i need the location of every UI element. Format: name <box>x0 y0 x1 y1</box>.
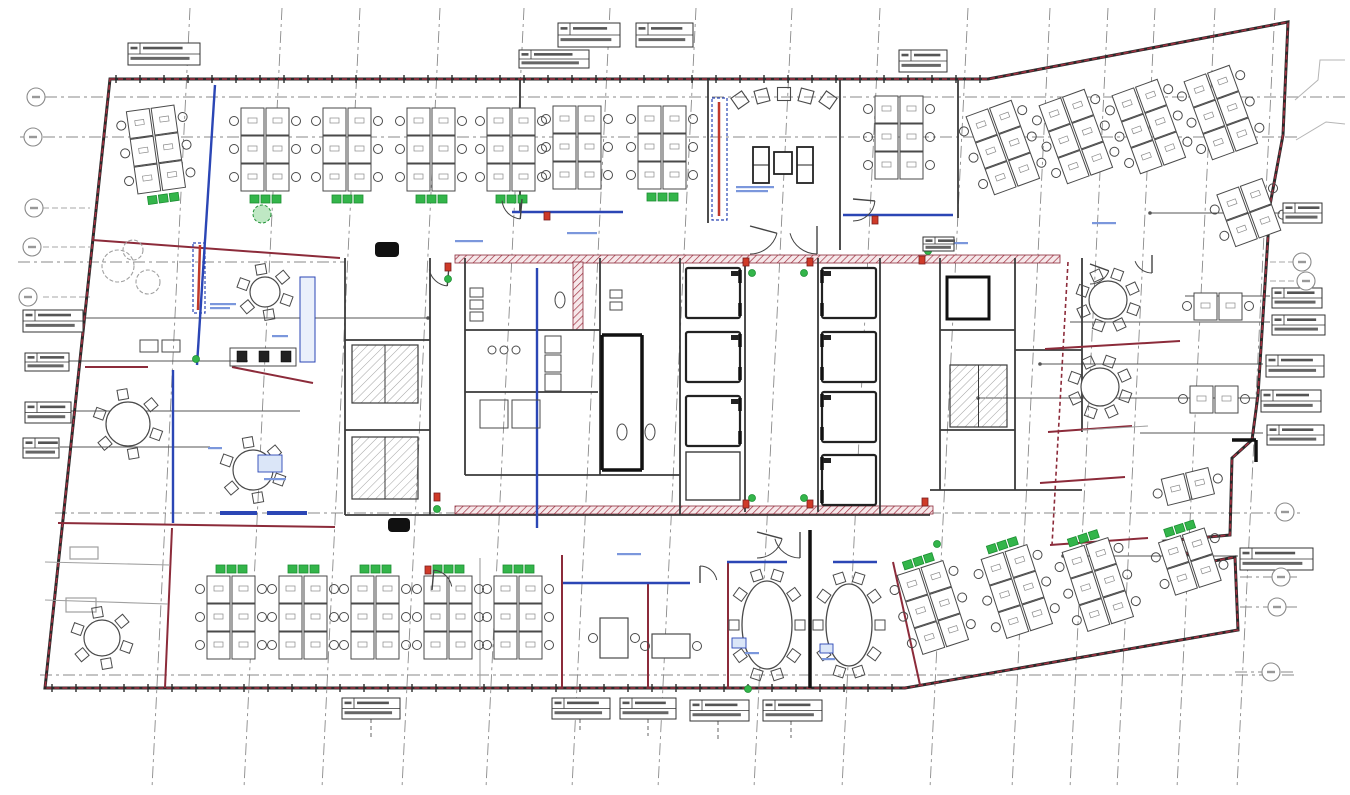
room-tag-name-text <box>573 27 607 30</box>
room-tag-area-text <box>1275 328 1318 331</box>
chair <box>926 105 935 114</box>
desk <box>155 133 182 163</box>
chair <box>864 161 873 170</box>
note-text-blue <box>1092 222 1116 224</box>
room-tag-area-text <box>693 713 741 716</box>
room-tag <box>763 700 822 721</box>
door-swing-arc <box>790 233 817 254</box>
exit-marker-green <box>445 276 452 283</box>
room-tag <box>128 43 200 65</box>
chair <box>990 622 1001 633</box>
door-swing-arc <box>700 566 717 580</box>
desk <box>126 109 153 139</box>
chair <box>458 117 467 126</box>
conference-table-oval <box>826 584 872 666</box>
storage-cabinet-green <box>923 553 934 563</box>
note-text-blue <box>272 335 288 337</box>
chair <box>220 454 233 467</box>
note-text-blue <box>210 303 236 305</box>
desk <box>638 162 661 189</box>
storage-cabinet-green <box>525 565 534 573</box>
desk <box>266 164 289 191</box>
partition-wall <box>1040 477 1125 483</box>
round-table <box>106 402 150 446</box>
room-tag-name-text <box>38 441 58 444</box>
chair <box>833 572 846 585</box>
room-tag-name-text <box>1281 359 1313 362</box>
chair <box>817 589 831 603</box>
chair <box>1016 104 1028 116</box>
chair <box>787 587 801 601</box>
room-tag <box>558 23 620 47</box>
storage-cabinet-green <box>238 565 247 573</box>
desk <box>424 632 447 659</box>
wc-fixture <box>470 300 483 309</box>
desk <box>232 604 255 631</box>
storage-cabinet-green <box>169 192 179 201</box>
chair <box>733 587 747 601</box>
chair <box>977 178 989 190</box>
storage-cabinet-green <box>288 565 297 573</box>
wc-fixture <box>545 374 561 391</box>
room-tag <box>1240 548 1313 570</box>
meeting-table-rect <box>652 634 690 658</box>
grid-bubble <box>1272 568 1290 586</box>
desk <box>279 604 302 631</box>
desk <box>512 136 535 163</box>
chair <box>604 115 613 124</box>
elevator-car <box>686 396 740 446</box>
desk <box>512 164 535 191</box>
wall-recess <box>70 547 98 559</box>
room-tag-area-text <box>1286 216 1318 219</box>
room-tag-number-text <box>902 54 909 57</box>
room-tag-number-text <box>1264 394 1271 397</box>
storage-cabinet-green <box>343 195 352 203</box>
desk <box>900 152 923 179</box>
wc-fixture <box>470 312 483 321</box>
chair <box>476 145 485 154</box>
chair <box>116 121 126 131</box>
storage-cabinet-green <box>986 543 997 553</box>
chair <box>1212 473 1223 484</box>
grid-bubble-label <box>1298 261 1306 263</box>
room-tag <box>620 698 676 719</box>
grid-bubble-label <box>28 246 36 248</box>
room-tag-name-text <box>1276 394 1309 397</box>
chair <box>689 143 698 152</box>
round-table <box>1089 281 1127 319</box>
storage-cabinet-green <box>514 565 523 573</box>
room-tag-area-text <box>522 61 579 64</box>
chair <box>292 117 301 126</box>
room-tag-area-text <box>131 57 190 60</box>
storage-cabinet-green <box>1007 537 1018 547</box>
wc-pan <box>645 424 655 440</box>
light-wall <box>45 600 168 604</box>
desk <box>553 134 576 161</box>
room-tag-area-text <box>623 711 669 714</box>
room-tag-number-text <box>561 27 568 30</box>
desk <box>494 604 517 631</box>
conference-table-group <box>813 572 885 678</box>
desk <box>663 106 686 133</box>
chair <box>458 173 467 182</box>
chair <box>98 436 112 450</box>
partition-wall <box>58 523 335 527</box>
chair <box>101 658 113 670</box>
chair <box>1041 141 1053 153</box>
chair <box>1195 143 1207 155</box>
grid-bubble <box>24 128 42 146</box>
chair <box>75 648 89 662</box>
chair <box>258 613 267 622</box>
room-tag-name-text <box>938 239 955 242</box>
round-table <box>84 620 120 656</box>
chair <box>1105 405 1118 418</box>
note-text-blue <box>736 190 768 192</box>
room-tag <box>899 50 947 72</box>
storage-cabinet-green <box>250 195 259 203</box>
servery-counter <box>300 277 315 362</box>
chair <box>1050 167 1062 179</box>
desk <box>519 604 542 631</box>
chair <box>292 145 301 154</box>
wc-fixture <box>470 288 483 297</box>
chair <box>268 641 277 650</box>
storage-cabinet-green <box>1185 520 1196 530</box>
room-tag-name-text <box>1282 428 1313 431</box>
light-wall <box>45 562 170 565</box>
desk <box>432 164 455 191</box>
chair <box>120 640 133 653</box>
chair <box>230 145 239 154</box>
chair <box>604 143 613 152</box>
door-leaf <box>750 226 777 233</box>
elevator-car <box>822 455 876 505</box>
storage-cabinet-green <box>427 195 436 203</box>
desk <box>151 105 178 135</box>
chair <box>1245 302 1254 311</box>
chair <box>957 592 968 603</box>
chair <box>867 589 881 603</box>
wc-fixtures <box>470 288 655 440</box>
desk <box>1219 293 1242 320</box>
plant-cloud <box>136 270 160 294</box>
lift-pit-room <box>686 452 740 500</box>
exit-marker-green <box>745 686 752 693</box>
chair <box>926 161 935 170</box>
service-elevator <box>947 277 989 319</box>
grid-bubble-label <box>1281 511 1289 513</box>
partition-wall-dashed <box>1052 262 1068 545</box>
chair <box>689 171 698 180</box>
elevator-counterweight <box>731 271 739 276</box>
storage-cabinet-green <box>1174 523 1185 533</box>
desk-cluster <box>1173 61 1268 163</box>
fire-rated-wall-band <box>573 262 583 330</box>
room-tag-number-text <box>1275 318 1282 321</box>
room-tag-area-text <box>1243 562 1303 565</box>
desk <box>266 136 289 163</box>
chair <box>476 117 485 126</box>
chair <box>875 620 885 630</box>
lounge-chair <box>798 88 814 104</box>
room-tag <box>1283 203 1322 223</box>
chair <box>396 173 405 182</box>
chair <box>973 568 984 579</box>
chair <box>268 585 277 594</box>
storage-cabinet-green <box>1088 530 1099 540</box>
desk <box>407 136 430 163</box>
desk <box>638 134 661 161</box>
chair <box>120 148 130 158</box>
desk <box>351 632 374 659</box>
chair <box>458 145 467 154</box>
room-tag <box>25 402 71 423</box>
elevator-counterweight <box>823 395 831 400</box>
chair <box>1113 318 1126 331</box>
storage-cabinet-green <box>310 565 319 573</box>
storage-cabinet-green <box>371 565 380 573</box>
desk <box>207 632 230 659</box>
chair <box>144 398 158 412</box>
storage-cabinet-green <box>1164 527 1175 537</box>
chair <box>1071 615 1082 626</box>
desk <box>1190 386 1213 413</box>
glazed-partition <box>197 85 215 365</box>
chair <box>1082 356 1095 369</box>
chair <box>413 585 422 594</box>
chair <box>751 569 764 582</box>
chair <box>852 665 865 678</box>
desk <box>323 164 346 191</box>
desk-cluster <box>1150 465 1225 508</box>
chair <box>545 613 554 622</box>
chair <box>958 126 970 138</box>
chair <box>242 437 254 449</box>
chair <box>374 117 383 126</box>
desk <box>512 108 535 135</box>
lounge-chair <box>778 88 791 101</box>
exit-marker-green <box>434 506 441 513</box>
desk <box>266 108 289 135</box>
desk-cluster <box>1179 386 1250 413</box>
storage-cabinet-green <box>261 195 270 203</box>
chair <box>1152 488 1163 499</box>
chair <box>276 270 290 284</box>
desk <box>519 632 542 659</box>
room-tag-name-text <box>567 702 599 705</box>
chair <box>127 448 139 460</box>
desk <box>279 576 302 603</box>
round-table <box>250 277 280 307</box>
desk <box>207 576 230 603</box>
chair <box>813 620 823 630</box>
chair <box>312 145 321 154</box>
chair <box>196 613 205 622</box>
desk-cluster <box>1028 85 1123 187</box>
desk <box>376 604 399 631</box>
partition-wall <box>1045 341 1180 349</box>
room-tag-area-text <box>26 324 75 327</box>
chair <box>948 565 959 576</box>
note-text-blue <box>455 240 483 242</box>
printer-unit <box>259 351 269 362</box>
room-tag-number-text <box>1243 552 1250 555</box>
storage-cabinet-green <box>444 565 453 573</box>
chair <box>1032 549 1043 560</box>
chair <box>1182 136 1194 148</box>
av-equipment-blue <box>258 455 282 472</box>
room-tag-area-text <box>926 246 951 249</box>
desk-cluster <box>1048 524 1145 635</box>
planting-layer <box>102 205 271 294</box>
desk <box>1215 386 1238 413</box>
chair <box>1186 117 1198 129</box>
adjacent-structure-line <box>1295 60 1345 100</box>
note-text-blue <box>208 447 222 449</box>
wc-pan <box>617 424 627 440</box>
room-tag-name-text <box>778 704 810 707</box>
grid-bubble <box>25 199 43 217</box>
plant-cloud <box>102 250 134 282</box>
storage-cabinet-green <box>647 193 656 201</box>
fire-exit-marker-red <box>919 256 925 264</box>
room-tag-number-text <box>639 27 646 30</box>
storage-cabinet-green <box>518 195 527 203</box>
chair <box>196 641 205 650</box>
desk <box>1186 468 1215 500</box>
chair <box>1077 305 1090 318</box>
fire-exit-marker-red <box>425 566 431 574</box>
riser-strip-red-line <box>198 245 200 310</box>
room-tag-area-text <box>561 38 612 41</box>
chair <box>374 173 383 182</box>
chair <box>1127 303 1140 316</box>
coffee-table <box>774 152 792 174</box>
desk <box>232 632 255 659</box>
desk-cluster <box>1183 293 1254 320</box>
chair <box>240 300 254 314</box>
exit-marker-green <box>934 541 941 548</box>
storage-cabinet-green <box>438 195 447 203</box>
door-swing-arc <box>775 539 800 558</box>
chair <box>1162 83 1174 95</box>
chair <box>1031 115 1043 127</box>
room-tag-area-text <box>766 713 814 716</box>
chair <box>1172 110 1184 122</box>
chair <box>545 641 554 650</box>
floor-plan-canvas <box>0 0 1350 795</box>
desk <box>304 576 327 603</box>
chair <box>374 145 383 154</box>
chair <box>545 585 554 594</box>
chair <box>178 112 188 122</box>
desk <box>351 576 374 603</box>
chair <box>1099 120 1111 132</box>
chair <box>330 641 339 650</box>
fire-exit-marker-red <box>445 263 451 271</box>
chair <box>1209 204 1221 216</box>
desk <box>279 632 302 659</box>
chair <box>982 595 993 606</box>
chair <box>1036 157 1048 169</box>
chair <box>93 407 106 420</box>
chair <box>1084 406 1097 419</box>
door-threshold-block <box>388 518 410 532</box>
storage-cabinet-green <box>416 195 425 203</box>
chair <box>396 117 405 126</box>
chair <box>627 115 636 124</box>
chair <box>255 264 267 276</box>
partition-wall <box>232 367 313 383</box>
av-equipment-blue <box>820 644 833 653</box>
fire-exit-marker-red <box>743 258 749 266</box>
fire-exit-marker-red <box>807 258 813 266</box>
storage-cabinet-green <box>354 195 363 203</box>
desk <box>134 164 161 194</box>
room-tag-area-text <box>639 38 686 41</box>
floor-plan-page <box>0 0 1350 795</box>
chair <box>1089 93 1101 105</box>
desk <box>494 576 517 603</box>
grid-bubble <box>1268 598 1286 616</box>
chair <box>1041 576 1052 587</box>
desk <box>424 604 447 631</box>
desk <box>159 161 186 191</box>
room-tag-name-text <box>1287 291 1315 294</box>
note-text-blue <box>210 307 230 309</box>
fire-exit-marker-red <box>434 493 440 501</box>
chair <box>476 173 485 182</box>
chair <box>115 614 129 628</box>
room-tag-number-text <box>1269 359 1276 362</box>
chair <box>729 620 739 630</box>
storage-cabinet-green <box>332 195 341 203</box>
chair <box>196 585 205 594</box>
note-text-blue <box>822 658 835 660</box>
chair <box>1104 105 1116 117</box>
desk <box>304 632 327 659</box>
room-tag-area-text <box>345 711 393 714</box>
storage-cabinet-green <box>382 565 391 573</box>
copy-area-counter <box>162 340 180 352</box>
room-tag-name-text <box>143 47 183 50</box>
storage-cabinet-green <box>669 193 678 201</box>
chair <box>867 647 881 661</box>
desk <box>241 164 264 191</box>
desk <box>494 632 517 659</box>
note-text-blue <box>736 186 774 188</box>
wc-fixture <box>545 336 561 353</box>
elevator-car <box>822 268 876 318</box>
adjacent-structure-line <box>1296 122 1345 140</box>
round-table-group <box>71 607 133 670</box>
storage-cabinet-green <box>507 195 516 203</box>
room-tag-name-text <box>357 702 389 705</box>
storage-cabinet-green <box>658 193 667 201</box>
desk <box>376 632 399 659</box>
chair <box>268 613 277 622</box>
room-tag <box>1267 425 1324 445</box>
chair <box>1176 91 1188 103</box>
fire-rated-wall-band <box>455 255 1060 263</box>
wc-fixture <box>610 302 622 310</box>
grid-bubble <box>1293 253 1311 271</box>
note-text-blue <box>567 232 597 234</box>
elevator-car <box>686 332 740 382</box>
